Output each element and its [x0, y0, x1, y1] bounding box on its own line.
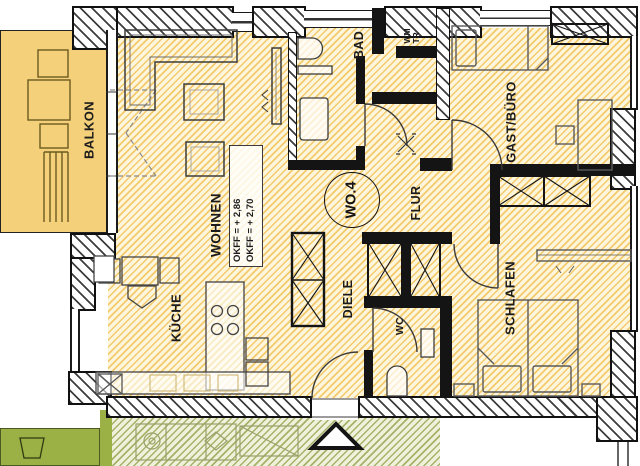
- room-label-flur: FLUR: [409, 186, 423, 221]
- window-top-1: [232, 12, 254, 32]
- unit-badge-label: WO.4: [344, 181, 360, 218]
- window-bad: [304, 10, 372, 28]
- window-gast: [480, 10, 550, 26]
- wall-wc-top: [364, 296, 442, 308]
- window-kitchen: [70, 309, 80, 373]
- room-label-bad: BAD: [352, 31, 366, 59]
- room-label-balkon: BALKON: [82, 101, 97, 159]
- room-label-wc: WC: [394, 317, 406, 335]
- exterior-wall-top-3: [384, 6, 482, 38]
- room-label-gast-buero: GAST/BÜRO: [504, 81, 519, 163]
- wall-flur-top: [372, 92, 437, 104]
- wall-pier-right-1: [610, 108, 636, 190]
- room-label-schlafen: SCHLAFEN: [503, 261, 518, 335]
- wall-flur-gast: [436, 8, 450, 120]
- exterior-wall-top-2: [252, 6, 306, 38]
- room-label-kueche: KÜCHE: [169, 294, 184, 342]
- exterior-wall-bottom-2: [358, 396, 612, 418]
- wall-bad-bottom: [288, 160, 360, 170]
- wall-pier-right-2: [610, 330, 636, 398]
- wall-gast-door-cap: [420, 158, 452, 171]
- wall-schlafen-entry: [490, 164, 500, 244]
- okff-line-1: OKFF = + 2,86: [231, 150, 244, 262]
- window-right-1: [630, 36, 638, 110]
- entrance-recess: [312, 398, 358, 420]
- wall-bad-flur-lower: [356, 146, 365, 170]
- terrace-below-area: [110, 418, 440, 466]
- wall-wc-right: [440, 296, 452, 398]
- wall-bad-flur-upper: [356, 56, 365, 104]
- floor-level-annotation: OKFF = + 2,86 OKFF = + 2,70: [229, 145, 263, 267]
- room-label-diele: DIELE: [341, 280, 355, 319]
- wall-wm-niche-left: [372, 8, 384, 54]
- wall-kitchen-corner-2: [70, 257, 96, 311]
- window-balcony-door: [106, 30, 118, 233]
- wall-gast-schlafen: [490, 164, 634, 176]
- exterior-wall-top-4: [550, 6, 638, 38]
- wall-wohnen-bad: [288, 32, 297, 164]
- floor-plan: BALKON WOHNEN KÜCHE BAD FLUR DIELE WC SC…: [0, 0, 640, 466]
- wall-wm-niche-bottom: [396, 46, 437, 58]
- window-right-2: [630, 186, 638, 332]
- label-wm-tr: WM TR: [403, 28, 421, 43]
- terrace-edge-strip: [100, 410, 112, 466]
- exterior-wall-bottom-1: [106, 396, 312, 418]
- right-wall-lines: [618, 442, 628, 466]
- exterior-wall-bottom-corner: [596, 396, 638, 442]
- okff-line-2: OKFF = + 2,70: [244, 150, 257, 262]
- label-tr: TR: [412, 28, 421, 43]
- wall-wc-left: [364, 350, 373, 398]
- wall-kitchen-corner-1: [70, 233, 116, 259]
- unit-badge: WO.4: [324, 172, 380, 228]
- garden-patch: [0, 428, 100, 466]
- room-label-wohnen: WOHNEN: [209, 193, 224, 257]
